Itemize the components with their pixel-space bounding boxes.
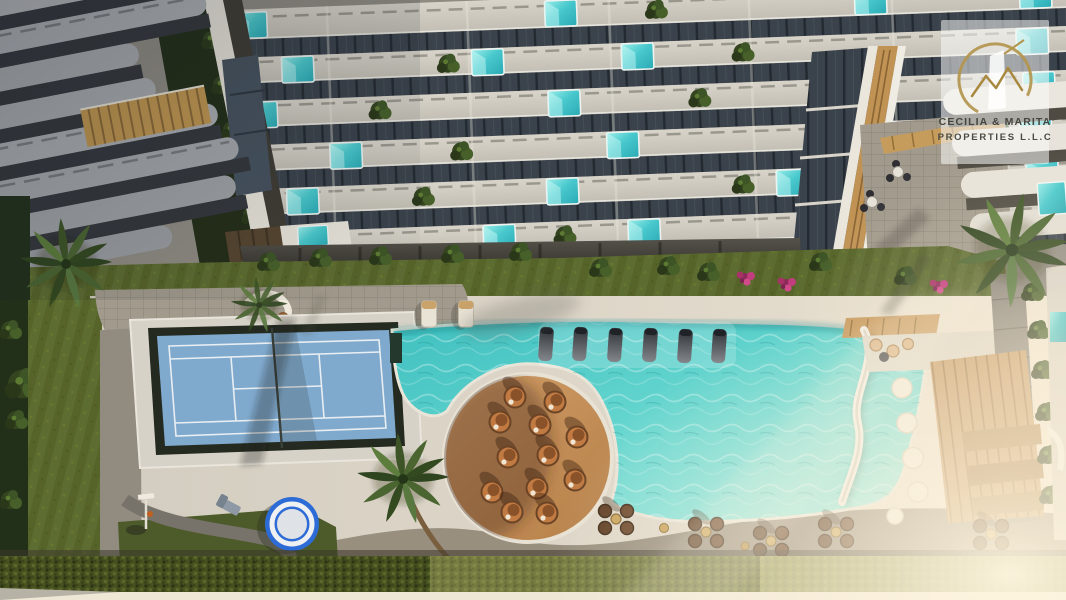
sunbed [414,301,437,330]
brand-name-line2: PROPERTIES L.L.C [938,132,1053,143]
property-render-image: CECILIA & MARITA PROPERTIES L.L.C [0,0,1066,600]
brand-name-line1: CECILIA & MARITA [939,116,1052,128]
watermark-logo: CECILIA & MARITA PROPERTIES L.L.C [938,20,1053,164]
spa-step [390,333,402,363]
tennis-court [130,312,422,468]
left-lawn [28,298,102,584]
corner-shade [0,0,420,300]
